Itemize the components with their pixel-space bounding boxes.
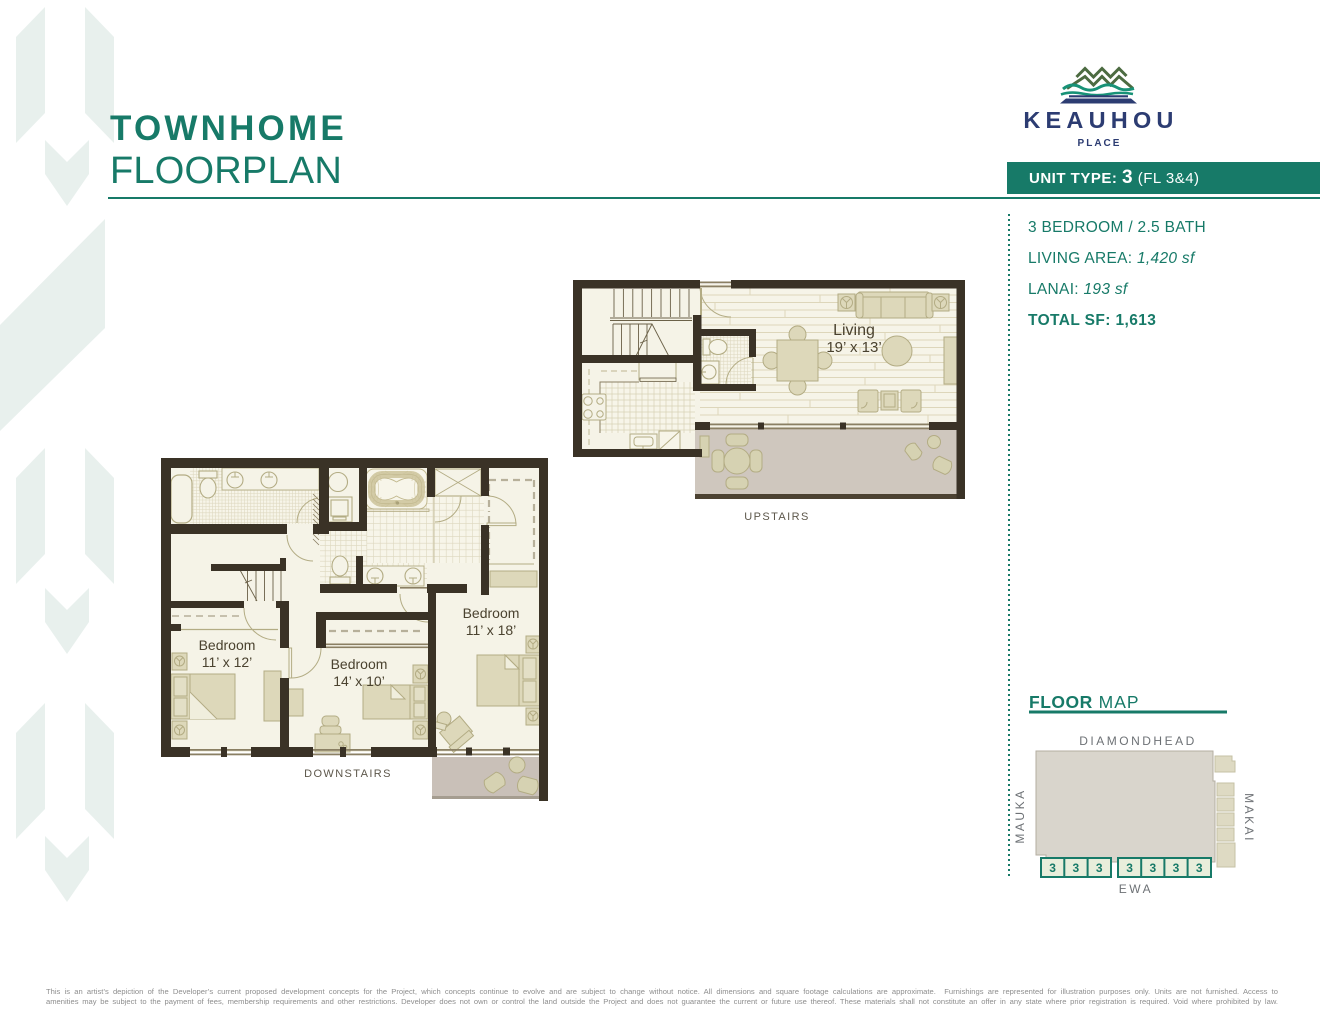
svg-text:3: 3 — [1196, 861, 1203, 875]
svg-text:Bedroom: Bedroom — [199, 637, 256, 653]
svg-text:FLOOR MAP: FLOOR MAP — [1029, 692, 1140, 712]
svg-text:3: 3 — [1073, 861, 1080, 875]
svg-text:3: 3 — [1126, 861, 1133, 875]
svg-text:MAKAI: MAKAI — [1242, 793, 1256, 843]
svg-text:11’ x 12’: 11’ x 12’ — [202, 654, 253, 670]
svg-text:UPSTAIRS: UPSTAIRS — [744, 511, 809, 523]
svg-text:PLACE: PLACE — [1078, 138, 1122, 149]
svg-text:DOWNSTAIRS: DOWNSTAIRS — [304, 768, 392, 780]
svg-text:3: 3 — [1173, 861, 1180, 875]
svg-text:Bedroom: Bedroom — [463, 605, 520, 621]
svg-text:DIAMONDHEAD: DIAMONDHEAD — [1079, 734, 1197, 748]
svg-text:3: 3 — [1149, 861, 1156, 875]
svg-text:14’ x 10’: 14’ x 10’ — [333, 673, 385, 689]
svg-text:Living: Living — [833, 322, 875, 339]
svg-text:KEAUHOU: KEAUHOU — [1023, 107, 1178, 133]
svg-text:MAUKA: MAUKA — [1013, 788, 1027, 843]
svg-text:11’ x 18’: 11’ x 18’ — [466, 622, 517, 638]
svg-text:3: 3 — [1049, 861, 1056, 875]
svg-text:19’ x 13’: 19’ x 13’ — [826, 339, 881, 356]
svg-text:EWA: EWA — [1119, 882, 1153, 896]
svg-text:3: 3 — [1096, 861, 1103, 875]
svg-text:Bedroom: Bedroom — [331, 656, 388, 672]
